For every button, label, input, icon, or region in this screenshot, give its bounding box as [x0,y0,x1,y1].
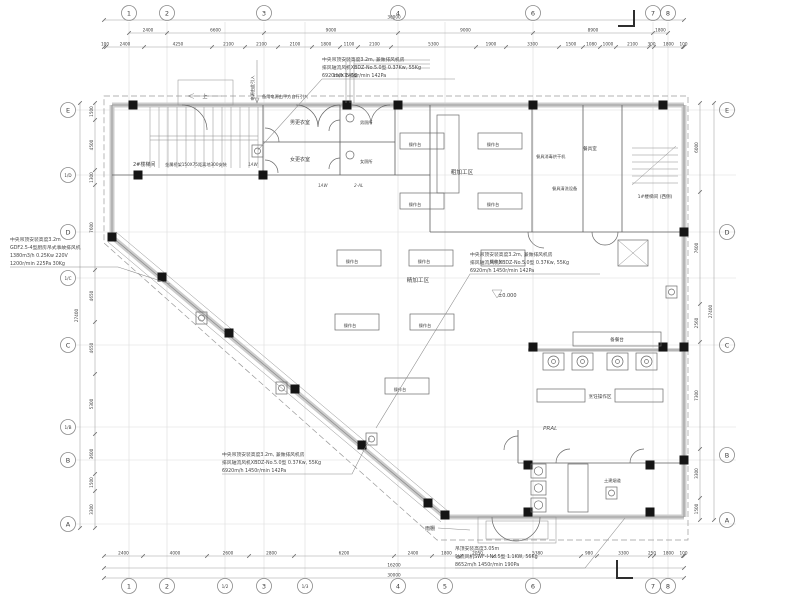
dim-text: 300 [648,41,656,46]
dim-text: 3600 [89,448,94,459]
female-changing-label: 女更衣室 [290,156,310,163]
dim-text: 6600 [210,27,221,32]
dim-text: 5300 [89,398,94,409]
dim-text: 2400 [120,41,131,46]
work-table-label: 操作台 [418,258,431,265]
fan-note-center-3: 6920m/h 1450r/min 142Pa [470,268,534,274]
dim-text: 1500 [89,106,94,117]
dim-text: 4250 [173,41,184,46]
work-table-label: 操作台 [487,141,500,148]
dim-text: 7300 [694,390,699,401]
grid-bubble-label: A [725,516,730,524]
fan-note-bottom-1: 吊顶安装高度3.05m [455,545,499,552]
column [394,101,403,110]
dim-text: 2400 [118,550,129,555]
fan-note-top-1: 中央吊顶安装高度3.2m, 兼做排风机房 [322,56,405,63]
sink-bowl [534,467,542,475]
steam-cabinet [568,464,588,512]
dim-text: 9000 [460,27,471,32]
toilet-fixture [346,151,354,159]
toilet-fixture [346,114,354,122]
fan-unit [606,487,617,499]
grid-bubble-label: 6 [531,582,535,590]
duct-shaft [437,115,459,193]
grid-bubble-label: 1/2 [222,584,229,589]
column [134,171,143,180]
dim-text: 2560 [694,317,699,328]
work-table-label: 操作台 [409,201,422,208]
dim-text: 100 [680,41,688,46]
dim-text: 250 [648,550,656,555]
column [225,329,234,338]
sink-bowl [534,484,542,492]
stair1-break-line [632,146,676,185]
dim-text: 4500 [89,139,94,150]
column [529,101,538,110]
stair2-label: 2#楼梯间 [133,161,155,168]
stove-burner [548,356,559,367]
dim-text: 1800 [655,27,666,32]
dim-text: 1500 [89,477,94,488]
stove-burner-center [552,360,556,364]
grid-bubble-label: C [725,341,730,349]
column [291,385,300,394]
fan-note-bottom-3: 8652m/h 1450r/min 190Pa [455,562,519,568]
stove-burner-center [581,360,585,364]
dish-dry-label: 餐具消毒烘干机 [536,153,566,160]
dim-text: 3300 [694,468,699,479]
dim-text: 7600 [89,222,94,233]
work-table-label: 操作台 [394,386,407,393]
fan-note-center-1: 中央吊顶安装高度3.2m, 兼做排风机房 [470,251,553,258]
smoke-duct-label: 土建烟道 [604,477,622,484]
work-table [409,250,453,266]
sink-bowl [534,501,542,509]
work-table [385,378,429,394]
work-table-label: 操作台 [419,322,432,329]
dim-text: 2100 [290,41,301,46]
lift-shaft-cross [618,240,648,266]
cooking-bench [537,389,585,402]
column [441,511,450,520]
fan-note-top-3: 6920m/h 1450r/min 142Pa [322,73,386,79]
column [108,233,117,242]
grid-bubble-label: A [66,520,71,528]
dim-text: 2400 [143,27,154,32]
work-table-label: 操作台 [346,258,359,265]
dim-text: 2600 [223,550,234,555]
grid-bubble-label: D [724,228,729,236]
stove [572,353,593,370]
dim-text: 1800 [441,550,452,555]
circuit-code-aw: 1AW [248,162,258,167]
fan-note-center-2: 排风轴流风机XBDZ-No.5.0型 0.37Kw, 55Kg [470,259,569,266]
grid-bubble-label: 8 [666,9,670,17]
cooking-area-label: 烹饪操作区 [589,393,612,400]
fan-note-left-3: 1380m3/h 0.25Kw 220V [10,253,69,259]
dim-text: 1000 [603,41,614,46]
fan-note-bl-3: 6920m/h 1450r/min 142Pa [222,468,286,474]
dim-text: 100 [101,41,109,46]
canopy-leader [438,528,470,530]
dim-text: 2100 [256,41,267,46]
backup-power-label: 备用电源由甲方自行引入 [262,93,309,100]
stove-burner [612,356,623,367]
work-table [478,133,522,149]
work-table-label: 操作台 [344,322,357,329]
dim-text: 1500 [694,503,699,514]
dim-text: 100 [680,550,688,555]
dim-text: 1800 [663,41,674,46]
dim-text: 16200 [387,562,401,567]
grid-bubble-label: E [725,106,729,114]
fan-note-left-leader [10,267,170,284]
fan-note-bl-2: 排风轴流风机XBDZ-No.5.0型 0.37Kw, 55Kg [222,459,321,466]
stair1-label: 1#楼梯间 (西侧) [638,193,673,200]
work-table-label: 操作台 [487,201,500,208]
grid-bubble-label: 1/3 [302,584,309,589]
grid-bubble-label: 4 [396,9,400,17]
column [129,101,138,110]
grid-bubble-label: 3 [262,9,266,17]
fine-area-label: 精加工区 [407,276,430,284]
male-changing-label: 男更衣室 [290,119,310,126]
grid-bubble-label: E [66,106,70,114]
stove [607,353,628,370]
work-table [400,193,444,209]
canopy-label: 雨棚 [425,525,435,532]
circuit-code-aw2: 1AW [318,183,328,188]
dim-text: 2400 [408,550,419,555]
dim-text: 27400 [74,309,79,323]
fan-note-bl-1: 中央吊顶安装高度3.2m, 兼做排风机房 [222,451,305,458]
doors [182,105,644,541]
dim-text: 1800 [321,41,332,46]
dish-wash-label: 餐具清洗设备 [552,185,578,192]
fan-note-left-4: 1200r/min 225Pa 30Kg [10,261,65,267]
grid-bubble-label: 1 [127,582,131,590]
grid-bubble-label: B [725,451,729,459]
grid-bubble-label: 5 [443,582,447,590]
dim-text: 9000 [326,27,337,32]
fan-note-top-2: 排风轴流风机XBDZ-No.5.0型 0.37Kw, 55Kg [322,64,421,71]
column [680,343,689,352]
grid-bubble-label: D [65,228,70,236]
dim-text: 6000 [694,142,699,153]
column [659,101,668,110]
column [529,343,538,352]
female-toilet-label: 女厕所 [360,158,373,165]
dim-text: 1800 [663,550,674,555]
dim-text: 7600 [694,242,699,253]
dim-text: 1100 [344,41,355,46]
stove-burner-center [616,360,620,364]
walls [108,105,684,522]
section-mark-top [618,10,634,26]
fan-unit [252,145,263,157]
circuit-code-al: 2-AL [354,183,364,188]
fan-note-bottom-2: 轴流风机SWF-I-No.5型 1.1KW, 56Kg [455,553,538,560]
column [646,461,655,470]
fan-note-top-leader [258,79,455,150]
dim-text: 980 [585,550,593,555]
grid-bubble-label: 1/C [65,276,72,281]
grid-bubble-label: 3 [262,582,266,590]
fan-unit-impeller [669,289,675,295]
dim-text: 1500 [566,41,577,46]
grid-bubble-label: 2 [165,9,169,17]
dim-text: 1080 [586,41,597,46]
dim-text: 3300 [527,41,538,46]
grid-bubble-label: B [66,456,70,464]
up-label: 上 [202,93,207,100]
column [659,343,668,352]
grid-bubble-label: 7 [651,9,655,17]
dim-text: 30000 [387,572,401,577]
grid-bubbles: 1234678121/231/345678E1/DD1/CC1/BBAEDCBA [61,6,735,594]
dim-text: 4000 [170,550,181,555]
dim-text: 2100 [369,41,380,46]
grid-bubble-label: 1/B [65,425,72,430]
dim-text: 5300 [428,41,439,46]
column [680,228,689,237]
dimension-rows: 3000024006600900090008900180010024004250… [74,14,716,579]
stove-burner [577,356,588,367]
dim-text: 2100 [223,41,234,46]
grid-bubble-label: C [66,341,71,349]
stove [636,353,657,370]
fan-unit [666,286,677,298]
column [680,456,689,465]
grid-bubble-label: 8 [666,582,670,590]
work-table [337,250,381,266]
dim-text: 3300 [618,550,629,555]
work-table [410,314,454,330]
tray-note: 金属桥架150X75距离地300安装 [165,161,228,168]
dim-text: 2100 [627,41,638,46]
stove [543,353,564,370]
column [259,171,268,180]
work-table [400,133,444,149]
level-label: ±0.000 [498,293,517,299]
dim-text: 4650 [89,342,94,353]
stove-burner [641,356,652,367]
dim-text: 1300 [89,172,94,183]
stove-burner-center [645,360,649,364]
section-marks [617,10,634,578]
work-table-label: 操作台 [409,141,422,148]
dim-text: 2800 [266,550,277,555]
fan-note-left-1: 中央吊顶安装高度3.2m [10,236,61,243]
door-arcs [182,105,644,541]
work-table [335,314,379,330]
dim-text: 27400 [708,305,713,319]
column [646,508,655,517]
grid-bubble-label: 4 [396,582,400,590]
section-mark-bottom [617,560,633,578]
fan-unit-impeller [609,490,615,496]
male-toilet-label: 男厕所 [360,119,373,126]
grid-bubble-label: 6 [531,9,535,17]
grid-bubble-label: 1 [127,9,131,17]
floor-plan-drawing: 3000024006600900090008900180010024004250… [0,0,800,600]
rough-area-label: 粗加工区 [451,168,474,176]
circuit-code-pral: PRAL [543,426,557,432]
dim-text: 1900 [486,41,497,46]
dim-text: 6200 [339,550,350,555]
power-in-label: 电源由此引入 [249,75,256,101]
dim-text: 3300 [89,504,94,515]
fan-unit-impeller [199,315,205,321]
prep-table-label: 备餐台 [610,336,624,343]
fan-unit-impeller [255,148,261,154]
fan-note-left-2: GDF2.5-4型厨房吊式事故排风机 [10,244,81,251]
dim-text: 4650 [89,290,94,301]
work-table [478,193,522,209]
grid-bubble-label: 2 [165,582,169,590]
column [424,499,433,508]
grid-bubble-label: 1/D [64,173,71,178]
dim-text: 8900 [588,27,599,32]
dish-room-label: 餐具室 [583,145,597,152]
cooking-bench [615,389,663,402]
grid-bubble-label: 7 [651,582,655,590]
